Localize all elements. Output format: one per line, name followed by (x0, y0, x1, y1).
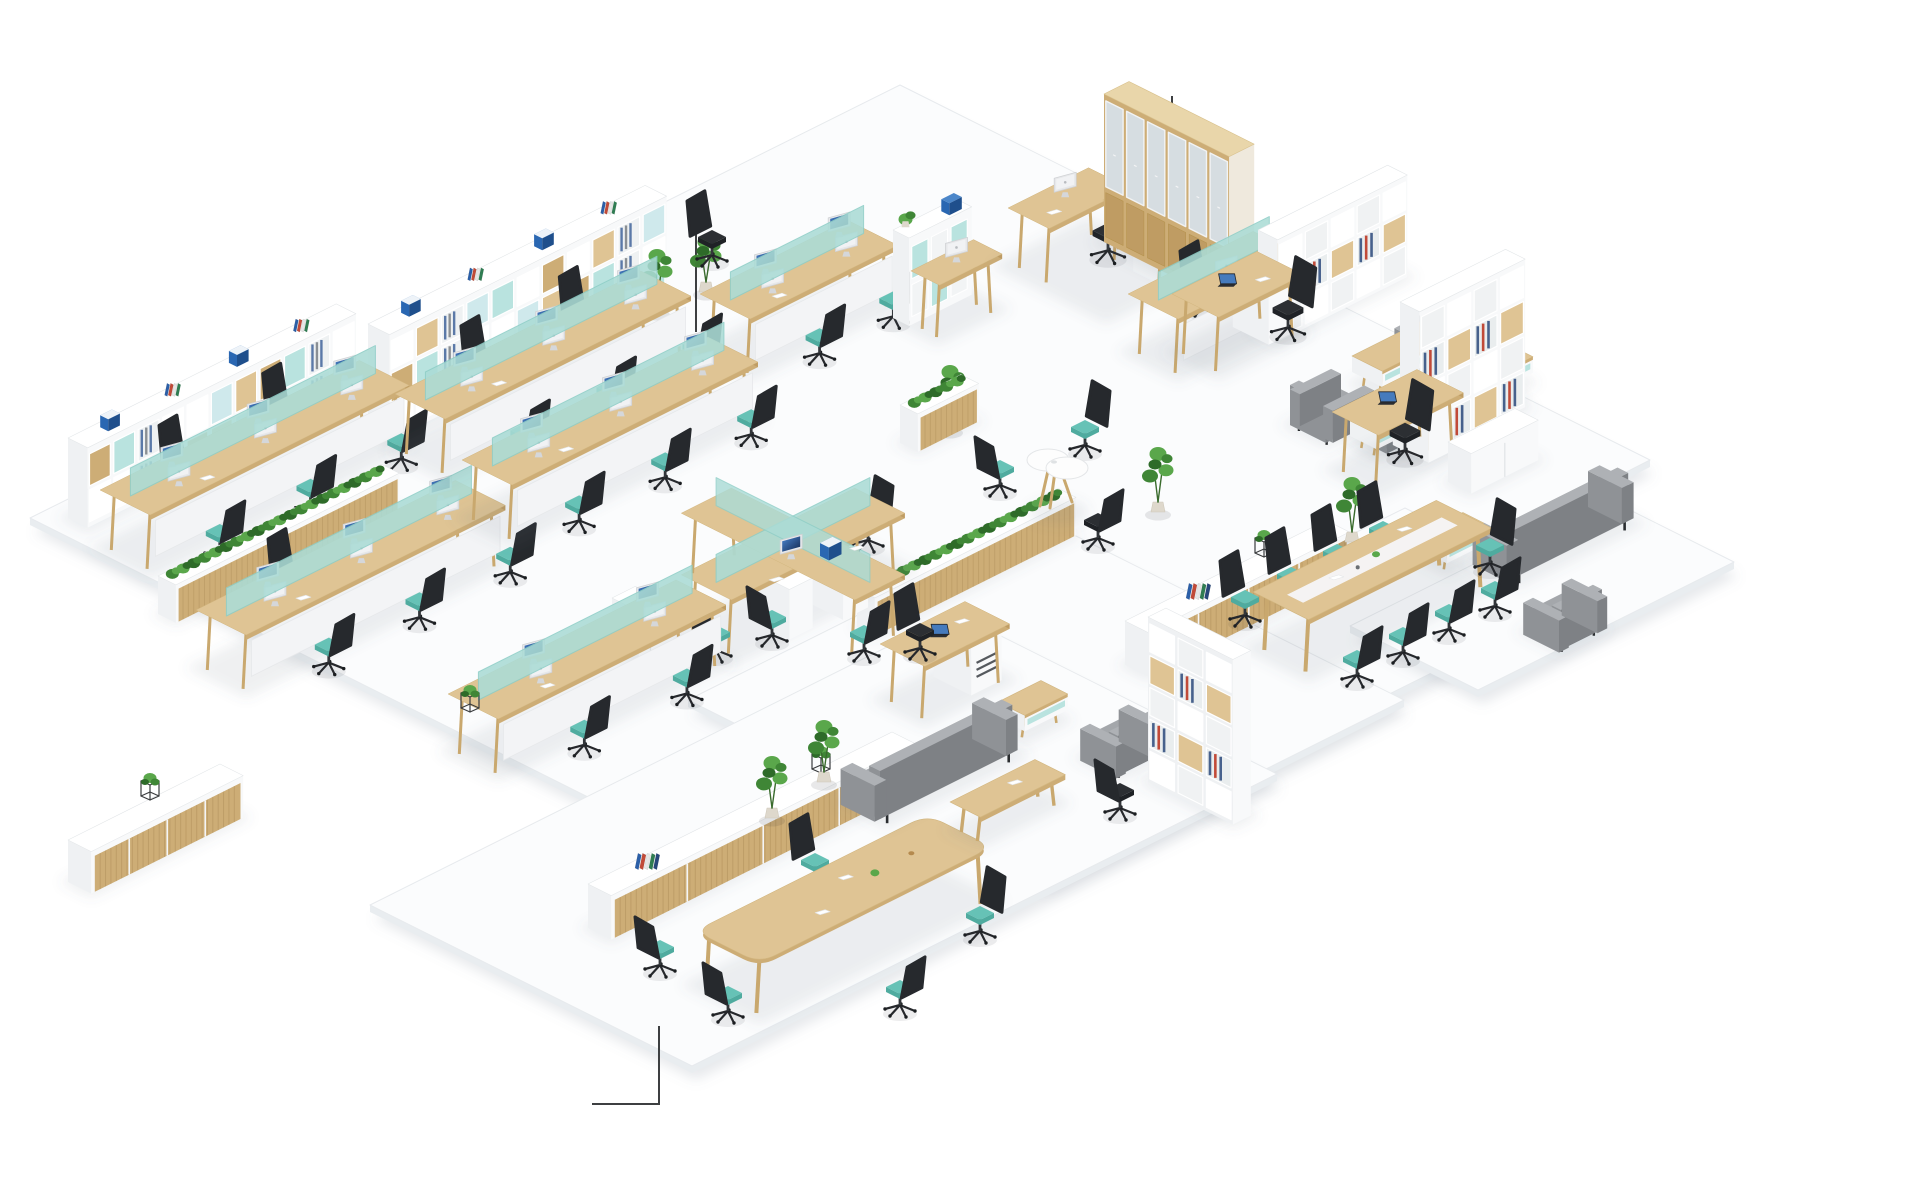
isometric-office-scene (0, 0, 1906, 1200)
binder-row (1186, 583, 1211, 599)
binder-row (635, 853, 660, 869)
office-floorplan-render (0, 0, 1906, 1200)
furniture-layer (57, 82, 1648, 1028)
